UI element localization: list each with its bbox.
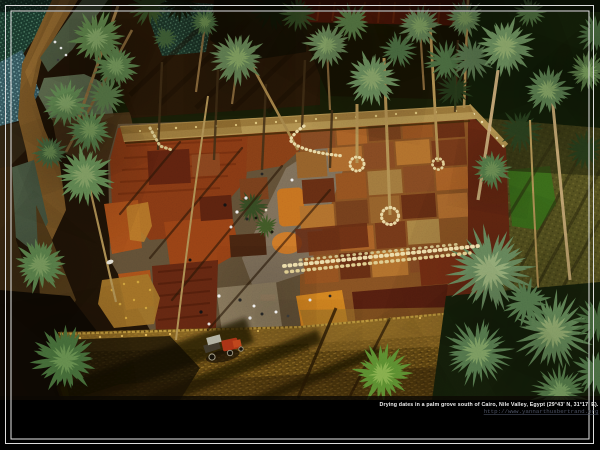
svg-text:http://www.yannarthusbertrand.: http://www.yannarthusbertrand.org bbox=[484, 408, 599, 415]
svg-text:Drying dates in a palm grove: Drying dates in a palm grove south of Ca… bbox=[380, 402, 599, 408]
